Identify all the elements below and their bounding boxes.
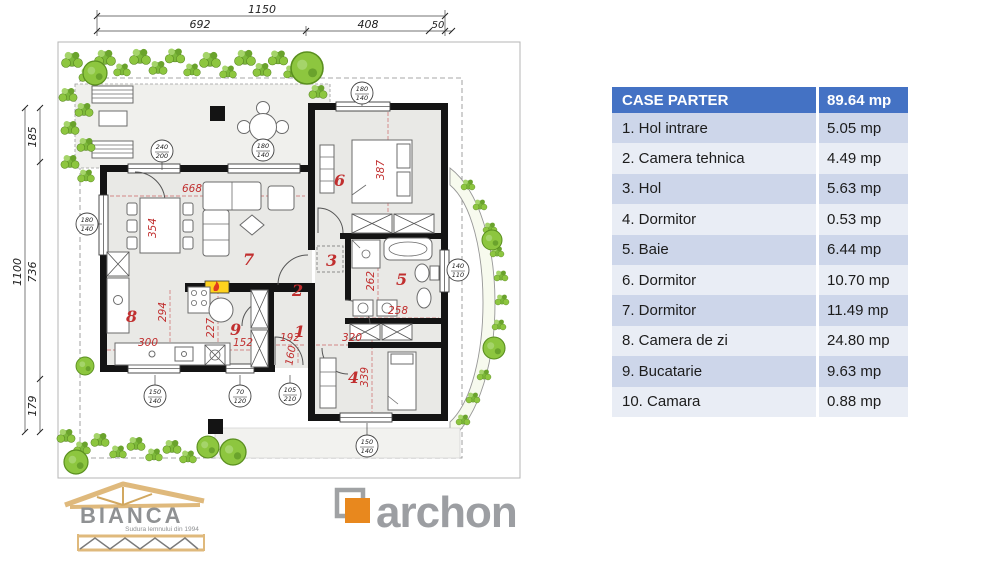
reddim-339: 339	[359, 367, 371, 387]
svg-text:140: 140	[361, 447, 373, 455]
reddim-668: 668	[182, 183, 202, 195]
room-label-1: 1	[294, 322, 305, 341]
reddim-258: 258	[388, 305, 408, 317]
bench	[92, 141, 133, 158]
table-row: 3. Hol 5.63 mp	[612, 174, 908, 204]
table-row: 4. Dormitor 0.53 mp	[612, 204, 908, 234]
table-row: 2. Camera tehnica 4.49 mp	[612, 143, 908, 173]
svg-text:110: 110	[452, 271, 464, 279]
table-header-title: CASE PARTER	[612, 87, 816, 113]
dim-seg-50: 50	[432, 20, 445, 31]
archon-logo: archon	[337, 488, 517, 537]
table-row: 1. Hol intrare 5.05 mp	[612, 113, 908, 143]
dim-seg-179: 179	[26, 396, 39, 417]
screenshot-root: { "plan": { "dims_top": {"total":"1150",…	[0, 0, 1000, 562]
room-label-7: 7	[243, 250, 254, 269]
table-row: 8. Camera de zi 24.80 mp	[612, 326, 908, 356]
svg-text:150: 150	[361, 438, 373, 446]
table-row: 9. Bucatarie 9.63 mp	[612, 356, 908, 386]
archon-mark-orange-square	[345, 498, 370, 523]
svg-text:140: 140	[452, 262, 464, 270]
pantry-box	[205, 345, 225, 365]
armchair	[268, 186, 294, 210]
room-label-5: 5	[396, 270, 407, 289]
marker-bath-window: 140 110	[447, 259, 469, 281]
terrace-side-table	[99, 111, 127, 126]
room-label-9: 9	[230, 320, 241, 339]
area-table: CASE PARTER 89.64 mp 1. Hol intrare 5.05…	[612, 87, 908, 417]
floor-plan: 1150 692 408 50 1100 185 736 179 668 354…	[0, 0, 600, 562]
dim-total-height: 1100	[11, 258, 24, 286]
table-row: 7. Dormitor 11.49 mp	[612, 295, 908, 325]
room-label-8: 8	[125, 307, 137, 326]
reddim-300: 300	[138, 337, 158, 349]
table-row: 5. Baie 6.44 mp	[612, 235, 908, 265]
desk-room4	[320, 358, 336, 408]
dimension-left: 1100 185 736 179	[11, 105, 43, 435]
terrace-column	[210, 106, 225, 121]
svg-text:140: 140	[149, 397, 161, 405]
svg-text:200: 200	[156, 152, 168, 160]
reddim-227: 227	[205, 318, 217, 338]
table-header-row: CASE PARTER 89.64 mp	[612, 87, 908, 113]
svg-text:240: 240	[156, 143, 168, 151]
dim-seg-185: 185	[26, 127, 39, 148]
bench	[92, 86, 133, 103]
svg-text:140: 140	[257, 151, 269, 159]
room-label-4: 4	[348, 368, 359, 387]
reddim-262: 262	[365, 271, 377, 291]
bianca-tagline: Sudura lemnului din 1994	[125, 526, 199, 533]
table-header-total: 89.64 mp	[819, 87, 908, 113]
stove	[188, 287, 210, 313]
svg-text:180: 180	[356, 85, 368, 93]
bianca-logo: BIANCA Sudura lemnului din 1994	[65, 484, 204, 551]
dining-table	[140, 198, 180, 253]
dimension-top: 1150 692 408 50	[94, 3, 455, 36]
terrace	[75, 84, 330, 168]
room-label-6: 6	[334, 171, 345, 190]
bianca-wordmark: BIANCA	[80, 503, 184, 528]
svg-text:120: 120	[234, 397, 246, 405]
reddim-294: 294	[157, 302, 169, 322]
room-label-2: 2	[291, 281, 303, 300]
dim-seg-736: 736	[26, 262, 39, 283]
table-row: 10. Camara 0.88 mp	[612, 387, 908, 417]
svg-text:105: 105	[284, 386, 296, 394]
svg-text:180: 180	[81, 216, 93, 224]
svg-text:140: 140	[81, 225, 93, 233]
dim-total-width: 1150	[248, 3, 276, 16]
svg-text:210: 210	[284, 395, 296, 403]
room-label-3: 3	[326, 251, 337, 270]
dim-seg-692: 692	[190, 18, 211, 31]
table-row: 6. Dormitor 10.70 mp	[612, 265, 908, 295]
reddim-320: 320	[342, 332, 362, 344]
reddim-387: 387	[375, 160, 387, 180]
svg-text:70: 70	[236, 388, 244, 396]
svg-text:150: 150	[149, 388, 161, 396]
svg-text:140: 140	[356, 94, 368, 102]
archon-wordmark: archon	[376, 488, 517, 537]
dim-seg-408: 408	[358, 18, 379, 31]
marker-terrace-table: 180 140	[252, 139, 274, 161]
bed-room4	[388, 352, 416, 410]
reddim-354: 354	[147, 218, 159, 238]
svg-text:180: 180	[257, 142, 269, 150]
